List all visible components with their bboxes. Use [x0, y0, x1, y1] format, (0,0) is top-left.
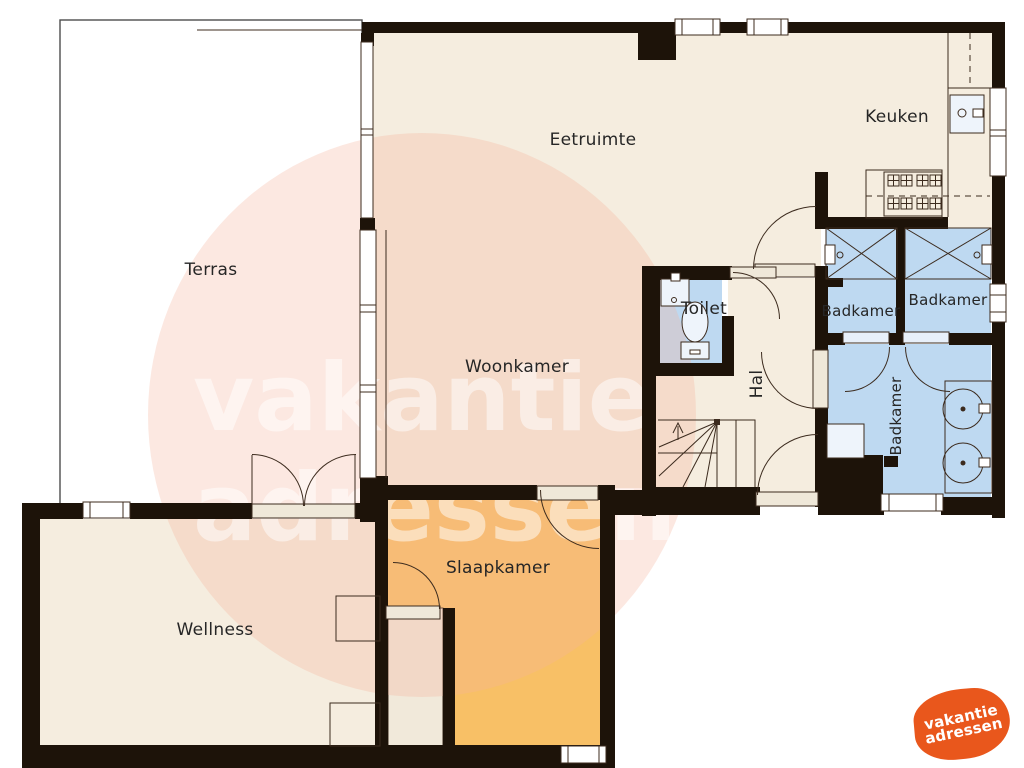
window-wellness-top — [83, 502, 130, 518]
room-label-terras: Terras — [185, 260, 238, 280]
room-label-slaapkamer: Slaapkamer — [446, 558, 550, 578]
room-label-hal: Hal — [747, 370, 767, 399]
window-badkamer-bottom — [881, 494, 943, 511]
room-label-wellness: Wellness — [176, 620, 253, 640]
door-badkamer-right-leaf — [903, 332, 949, 343]
room-label-eetruimte: Eetruimte — [550, 130, 637, 150]
window-top-1 — [675, 19, 720, 35]
window-keuken-right — [990, 88, 1006, 176]
watermark-text-line1: vakantie — [193, 344, 651, 453]
room-label-toilet: Toilet — [681, 299, 727, 319]
room-badkamer-top-right-fill — [905, 228, 991, 334]
window-badkamer-right — [990, 284, 1006, 322]
sink-icon — [950, 95, 984, 133]
room-label-keuken: Keuken — [865, 107, 929, 127]
cabinet-icon — [827, 424, 864, 458]
room-label-badkamer-lower: Badkamer — [887, 376, 905, 455]
floor-plan: vakantie adressen — [0, 0, 1024, 768]
window-top-2 — [747, 19, 788, 35]
door-badkamer-left-leaf — [843, 332, 889, 343]
room-label-badkamer-top-left: Badkamer — [821, 302, 900, 320]
door-wellness-double-threshold — [252, 504, 355, 518]
room-label-woonkamer: Woonkamer — [465, 357, 569, 377]
window-slaapkamer-bottom — [561, 746, 606, 763]
window-woonkamer-left-upper — [361, 42, 373, 218]
room-label-badkamer-top-right: Badkamer — [908, 291, 987, 309]
